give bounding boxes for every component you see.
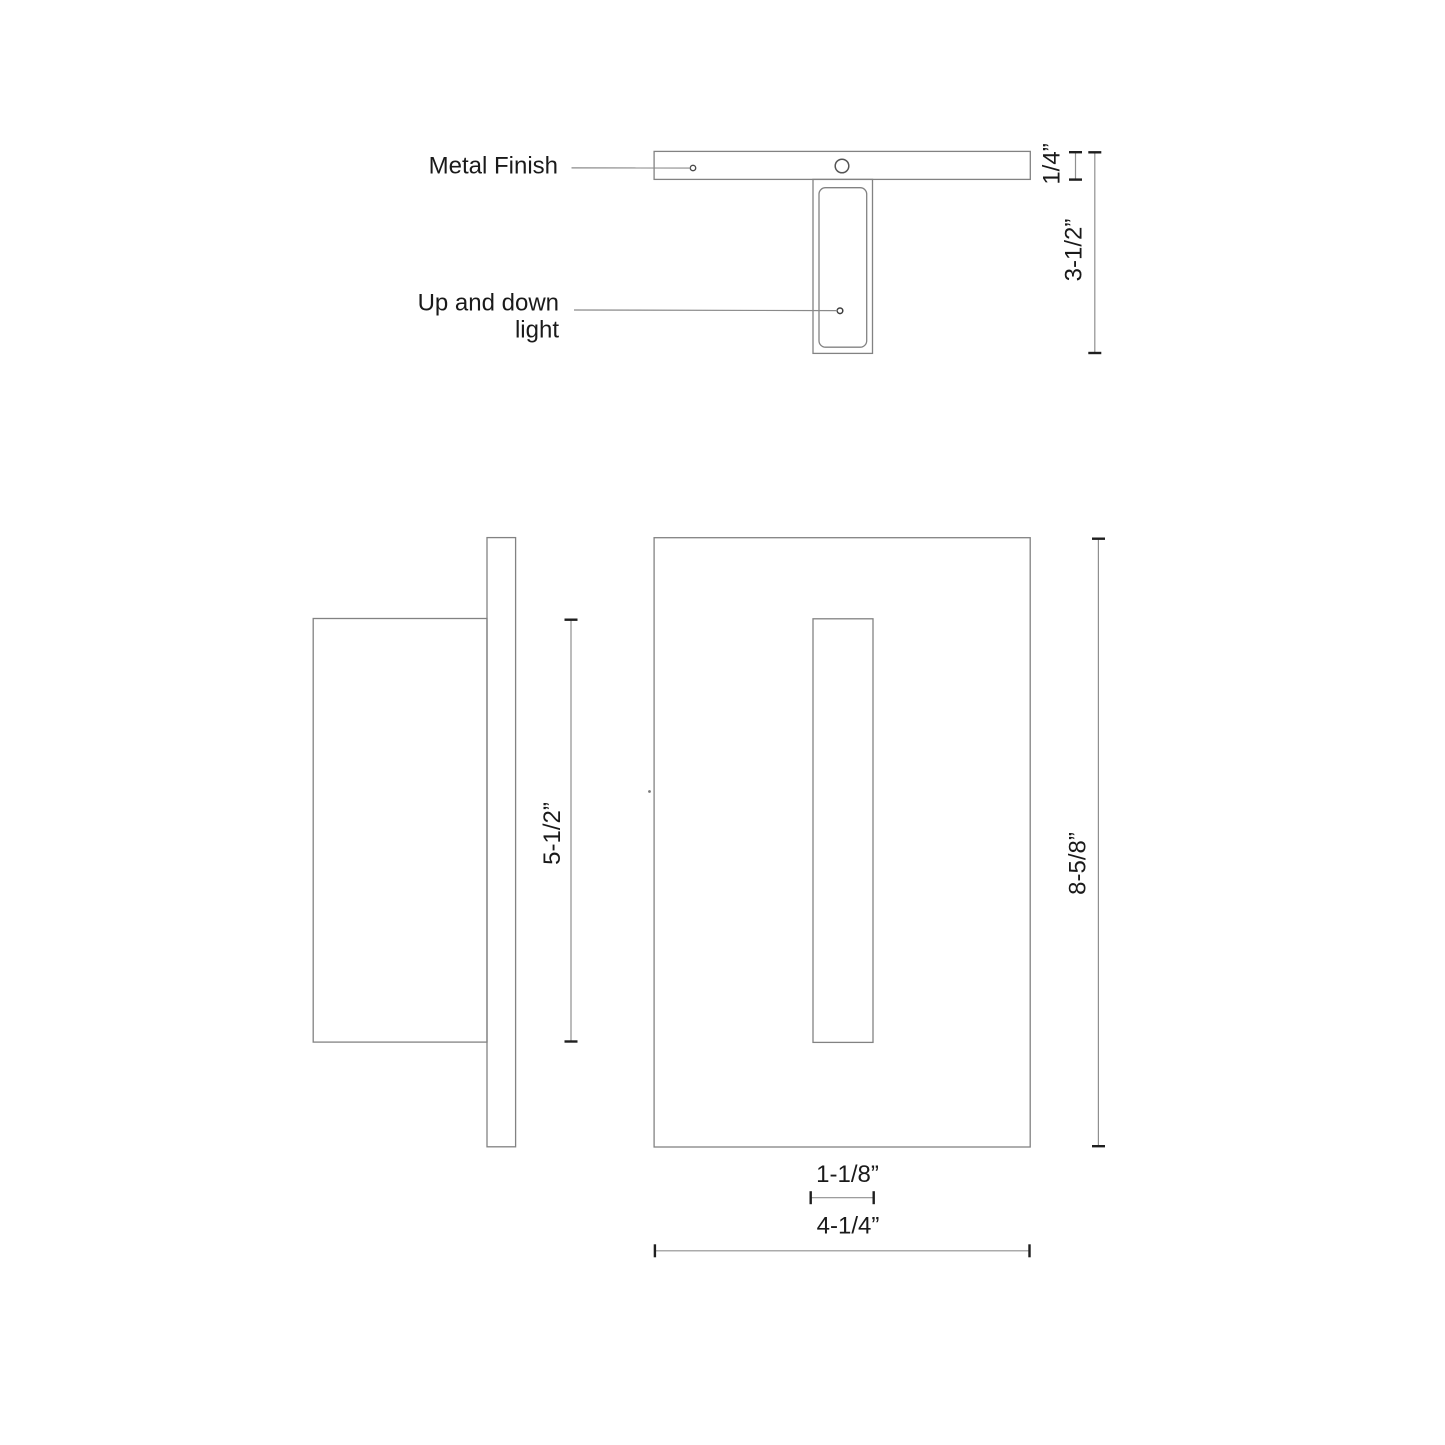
svg-text:light: light bbox=[515, 316, 559, 343]
svg-text:5-1/2”: 5-1/2” bbox=[539, 802, 566, 865]
svg-text:8-5/8”: 8-5/8” bbox=[1064, 832, 1091, 895]
svg-text:Metal Finish: Metal Finish bbox=[429, 152, 558, 179]
svg-text:4-1/4”: 4-1/4” bbox=[817, 1213, 880, 1240]
svg-text:1-1/8”: 1-1/8” bbox=[816, 1161, 879, 1188]
svg-text:3-1/2”: 3-1/2” bbox=[1060, 219, 1087, 282]
svg-text:1/4”: 1/4” bbox=[1038, 143, 1065, 184]
svg-text:Up and down: Up and down bbox=[418, 289, 559, 316]
